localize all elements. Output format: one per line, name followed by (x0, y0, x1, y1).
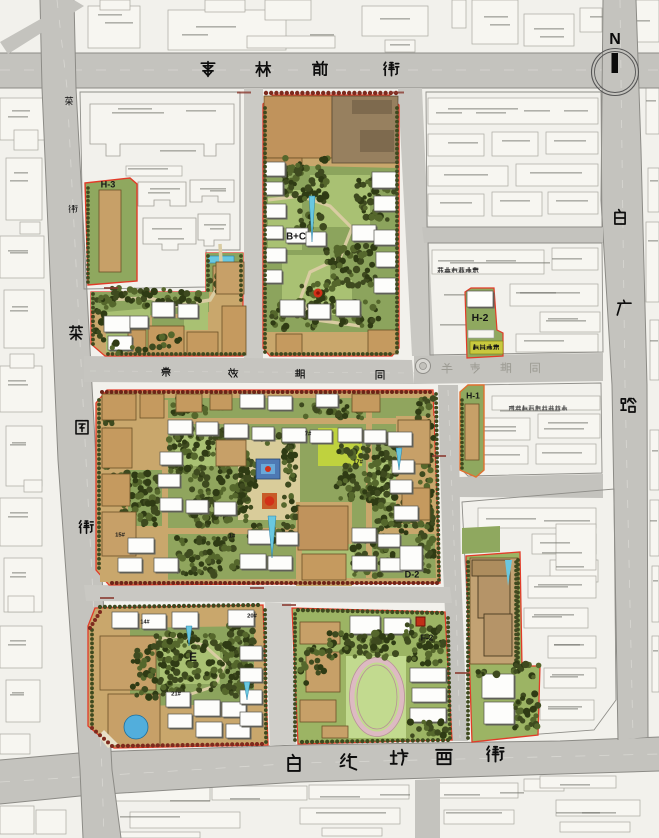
svg-text:N: N (609, 31, 621, 48)
svg-text:7#: 7# (305, 432, 312, 438)
svg-text:B+C: B+C (286, 232, 306, 243)
svg-text:20#: 20# (247, 614, 258, 620)
svg-text:21#: 21# (171, 692, 182, 698)
svg-text:F-2: F-2 (421, 632, 434, 642)
svg-text:14#: 14# (140, 620, 149, 626)
svg-text:15#: 15# (115, 533, 126, 539)
svg-text:1#: 1# (229, 534, 236, 540)
svg-text:D-2: D-2 (405, 570, 420, 580)
svg-text:H-3: H-3 (101, 180, 116, 190)
svg-text:H-1: H-1 (466, 390, 480, 400)
svg-text:E: E (189, 651, 197, 664)
svg-text:17#: 17# (353, 460, 364, 466)
svg-text:H-2: H-2 (472, 313, 489, 324)
